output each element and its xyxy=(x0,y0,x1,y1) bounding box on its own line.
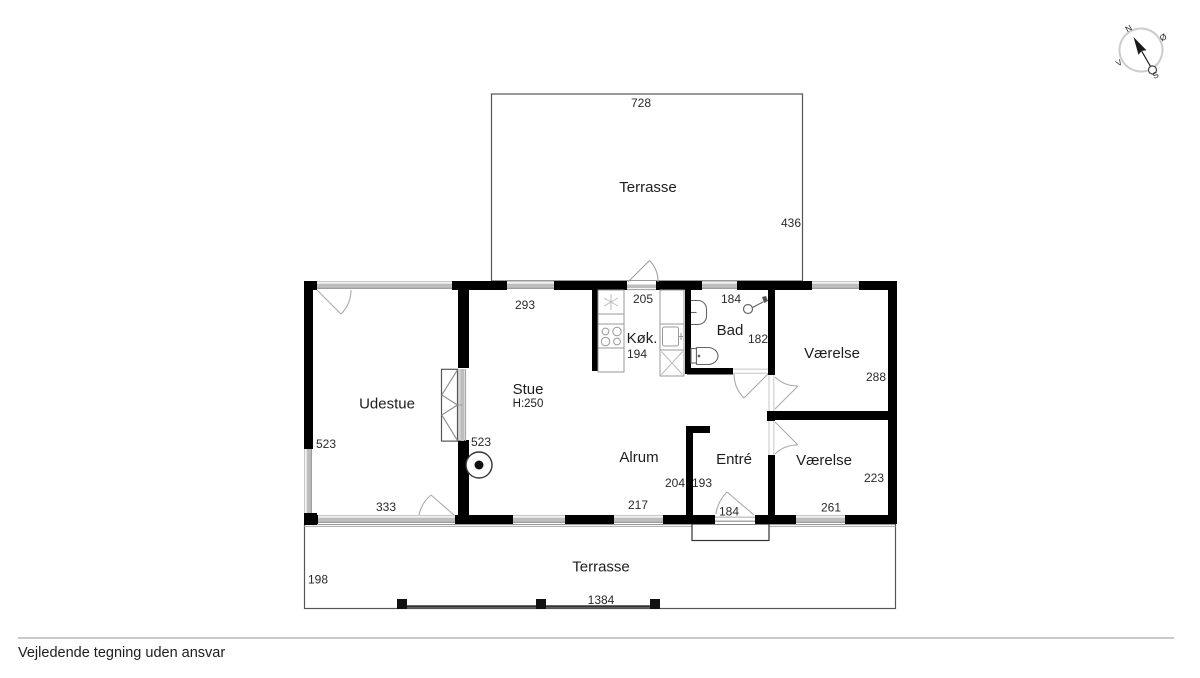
svg-text:193: 193 xyxy=(692,476,712,490)
svg-text:Alrum: Alrum xyxy=(619,449,658,466)
svg-text:Stue: Stue xyxy=(513,381,544,398)
svg-text:1384: 1384 xyxy=(588,593,615,607)
svg-text:184: 184 xyxy=(721,292,741,306)
svg-text:Udestue: Udestue xyxy=(359,396,415,413)
svg-text:288: 288 xyxy=(866,370,886,384)
svg-text:194: 194 xyxy=(627,347,647,361)
svg-text:Bad: Bad xyxy=(717,322,744,339)
svg-text:Vejledende tegning uden ansvar: Vejledende tegning uden ansvar xyxy=(18,645,225,661)
svg-text:523: 523 xyxy=(316,437,336,451)
svg-text:205: 205 xyxy=(633,292,653,306)
svg-text:Terrasse: Terrasse xyxy=(572,559,630,576)
svg-text:728: 728 xyxy=(631,96,651,110)
svg-text:H:250: H:250 xyxy=(513,398,544,410)
svg-text:Entré: Entré xyxy=(716,451,752,468)
svg-text:Terrasse: Terrasse xyxy=(619,179,677,196)
svg-text:204: 204 xyxy=(665,476,685,490)
svg-text:217: 217 xyxy=(628,498,648,512)
svg-text:Værelse: Værelse xyxy=(796,452,852,469)
svg-text:Køk.: Køk. xyxy=(627,330,658,347)
svg-text:333: 333 xyxy=(376,500,396,514)
svg-text:261: 261 xyxy=(821,501,841,515)
svg-text:436: 436 xyxy=(781,216,801,230)
svg-text:182: 182 xyxy=(748,332,768,346)
svg-text:523: 523 xyxy=(471,435,491,449)
svg-text:293: 293 xyxy=(515,298,535,312)
svg-text:184: 184 xyxy=(719,505,739,519)
svg-text:Værelse: Værelse xyxy=(804,345,860,362)
svg-text:198: 198 xyxy=(308,573,328,587)
svg-text:223: 223 xyxy=(864,471,884,485)
